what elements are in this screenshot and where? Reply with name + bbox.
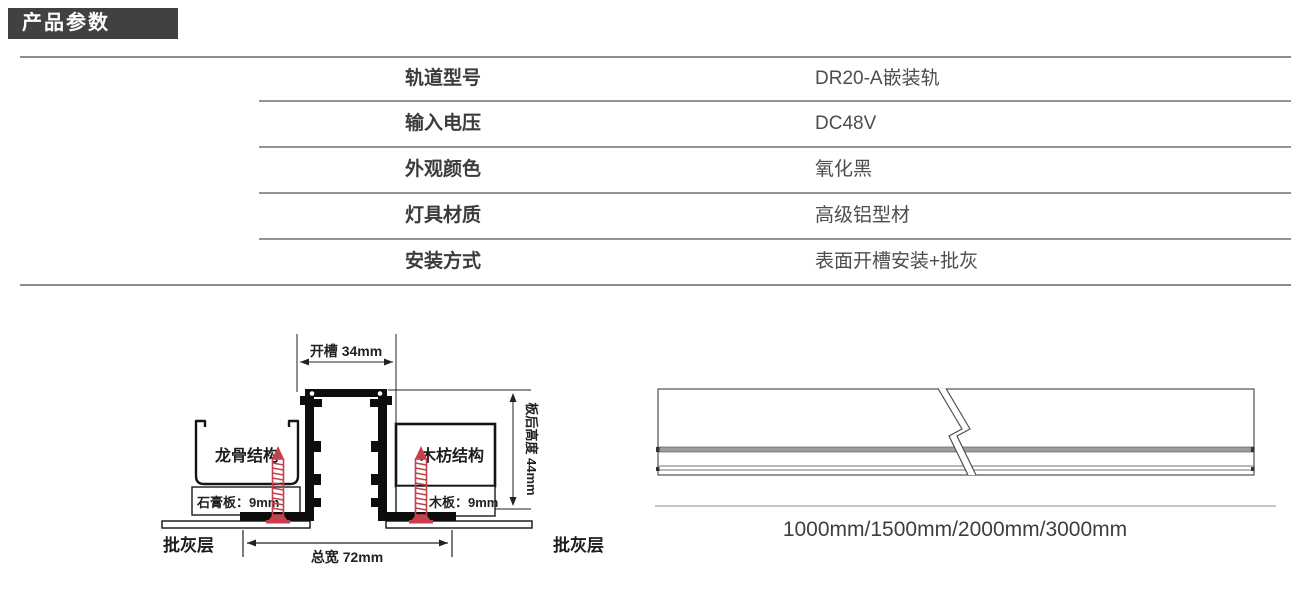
row-label: 输入电压 xyxy=(405,102,481,146)
section-title: 产品参数 xyxy=(22,12,110,34)
rail-length-diagram: 1000mm/1500mm/2000mm/3000mm xyxy=(650,382,1295,547)
row-value: DC48V xyxy=(815,102,876,146)
row-label: 轨道型号 xyxy=(405,57,481,101)
row-value: 氧化黑 xyxy=(815,148,872,192)
row-label: 外观颜色 xyxy=(405,148,481,192)
table-row: 输入电压 DC48V xyxy=(0,102,1308,146)
cross-section-diagram: 开槽 34mm 板后高度 44mm 龙骨结构 石膏板：9mm 木枋结构 木板：9… xyxy=(140,328,610,578)
putty-label-right: 批灰层 xyxy=(553,535,604,555)
putty-label-left: 批灰层 xyxy=(163,535,214,555)
row-label: 灯具材质 xyxy=(405,194,481,238)
row-label: 安装方式 xyxy=(405,240,481,284)
section-title-badge: 产品参数 xyxy=(8,8,178,39)
putty-strip-right xyxy=(386,521,532,528)
product-spec-page: 产品参数 轨道型号 DR20-A嵌装轨 输入电压 DC48V 外观颜色 氧化黑 … xyxy=(0,0,1308,613)
slot-width-label: 开槽 34mm xyxy=(310,343,382,359)
wood-board-label: 木板：9mm xyxy=(428,495,498,510)
rail-length-options: 1000mm/1500mm/2000mm/3000mm xyxy=(783,518,1127,541)
table-rule-bottom xyxy=(20,284,1291,286)
table-row: 外观颜色 氧化黑 xyxy=(0,148,1308,192)
board-height-label: 板后高度 44mm xyxy=(524,402,539,495)
row-value: 表面开槽安装+批灰 xyxy=(815,240,978,284)
table-row: 安装方式 表面开槽安装+批灰 xyxy=(0,240,1308,284)
wood-frame-label: 木枋结构 xyxy=(419,446,484,465)
row-value: DR20-A嵌装轨 xyxy=(815,57,940,101)
row-value: 高级铝型材 xyxy=(815,194,910,238)
total-width-label: 总宽 72mm xyxy=(311,549,383,565)
table-row: 轨道型号 DR20-A嵌装轨 xyxy=(0,57,1308,101)
keel-label: 龙骨结构 xyxy=(214,446,279,465)
gypsum-board-label: 石膏板：9mm xyxy=(196,495,279,510)
table-row: 灯具材质 高级铝型材 xyxy=(0,194,1308,238)
